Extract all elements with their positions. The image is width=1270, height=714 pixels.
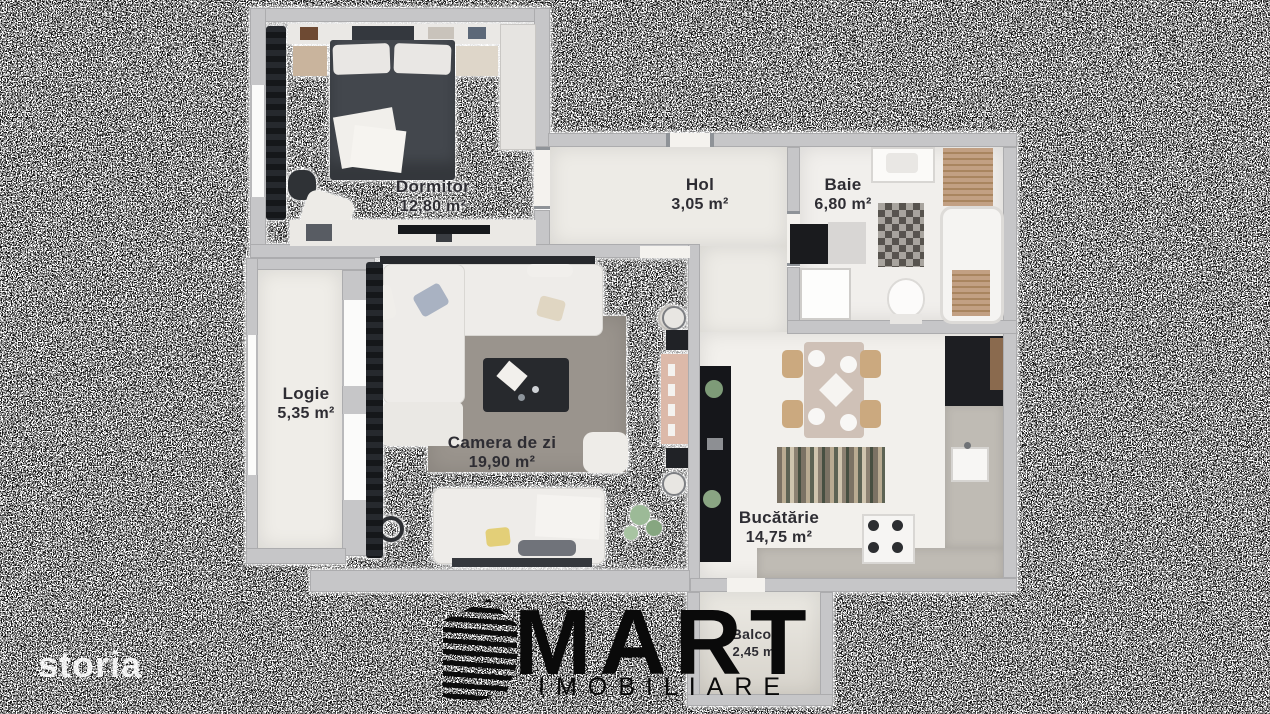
window <box>246 335 258 475</box>
wall-segment <box>250 8 550 22</box>
wood-panel <box>990 338 1003 390</box>
door-opening-entrance <box>666 133 714 147</box>
coffee-table <box>483 358 569 412</box>
dining-chair <box>860 350 881 378</box>
speaker <box>666 448 688 468</box>
door-opening-dormitor <box>534 150 550 208</box>
plate <box>808 350 825 367</box>
stove-burner <box>892 542 903 553</box>
wall-segment <box>246 548 346 564</box>
door-frame-tick <box>710 133 714 147</box>
shelf-box <box>428 27 454 39</box>
sink-basin <box>886 153 918 173</box>
bath-wood-shelf <box>943 148 993 206</box>
table-deco <box>532 386 539 393</box>
curtain <box>266 26 286 220</box>
room-area: 2,45 m² <box>732 644 780 660</box>
room-label-logie: Logie 5,35 m² <box>277 383 334 424</box>
stove-burner <box>868 520 879 531</box>
wall-dark-rail <box>380 256 595 264</box>
room-name: Logie <box>277 383 334 404</box>
wall-segment <box>687 694 833 706</box>
console-knob <box>668 424 675 436</box>
dining-chair <box>782 400 803 428</box>
room-label-hol: Hol 3,05 m² <box>671 174 728 215</box>
table-deco <box>518 394 525 401</box>
nightstand <box>293 46 327 76</box>
room-label-bucatarie: Bucătărie 14,75 m² <box>739 507 819 548</box>
floor-hol-corridor <box>700 246 787 336</box>
dining-chair <box>782 350 803 378</box>
room-label-baie: Baie 6,80 m² <box>814 174 871 215</box>
plate <box>840 414 857 431</box>
throw-blanket <box>535 494 601 539</box>
room-label-camera-de-zi: Camera de zi 19,90 m² <box>448 432 556 473</box>
wall-segment <box>687 592 700 706</box>
window <box>342 300 368 386</box>
floor-hol <box>550 147 787 246</box>
bath-rug <box>878 203 924 267</box>
shower-door <box>800 268 851 320</box>
tv-stand <box>436 234 452 242</box>
pillow <box>393 43 451 75</box>
console-knob <box>668 384 675 396</box>
pillow <box>332 43 390 75</box>
stove-burner <box>892 520 903 531</box>
wall-segment <box>787 147 800 212</box>
toilet-tank <box>890 314 922 324</box>
faucet <box>964 442 971 449</box>
wall-segment <box>534 8 550 147</box>
room-name: Baie <box>814 174 871 195</box>
wall-segment <box>246 258 375 270</box>
plate <box>808 408 825 425</box>
speaker <box>666 330 688 350</box>
wall-segment <box>688 244 700 592</box>
nightstand <box>456 46 498 76</box>
pillow <box>485 527 511 547</box>
door-opening-living <box>640 246 690 258</box>
bathroom-cabinet <box>828 222 866 264</box>
wall-segment <box>310 570 690 592</box>
floorplan: Dormitor 12,80 m² Hol 3,05 m² Baie 6,80 … <box>0 0 1270 714</box>
room-name: Balcon <box>732 626 780 644</box>
door-frame-tick <box>534 206 550 209</box>
curtain <box>366 262 383 558</box>
shelf-unit <box>352 26 414 40</box>
laptop <box>306 224 332 241</box>
door-frame-tick <box>666 133 670 147</box>
pouf <box>583 432 628 473</box>
tv <box>398 225 490 234</box>
shelf-books <box>468 27 486 39</box>
stove-burner <box>868 542 879 553</box>
room-name: Bucătărie <box>739 507 819 528</box>
console-knob <box>668 364 675 376</box>
vent <box>527 264 573 277</box>
room-name: Dormitor <box>396 176 470 197</box>
wall-segment <box>548 133 1017 147</box>
door-opening-balcon <box>727 578 765 592</box>
room-label-balcon: Balcon 2,45 m² <box>732 626 780 660</box>
wardrobe <box>500 24 536 150</box>
room-area: 14,75 m² <box>739 528 819 548</box>
room-name: Camera de zi <box>448 432 556 453</box>
lamp <box>662 306 686 330</box>
wall-segment <box>820 592 833 706</box>
floorplan-image: Dormitor 12,80 m² Hol 3,05 m² Baie 6,80 … <box>0 0 1270 714</box>
kitchen-pot <box>707 438 723 450</box>
room-area: 6,80 m² <box>814 195 871 215</box>
plate <box>840 356 857 373</box>
room-area: 12,80 m² <box>396 197 470 217</box>
lamp <box>662 472 686 496</box>
kitchen-sink <box>951 447 989 482</box>
window <box>250 85 266 197</box>
door-frame-tick <box>534 147 550 150</box>
blanket <box>350 125 407 173</box>
room-area: 5,35 m² <box>277 404 334 424</box>
seat-cushion <box>518 540 576 556</box>
shelf-books <box>300 27 318 40</box>
kitchen-rug <box>777 447 885 503</box>
sofa-base <box>452 558 592 567</box>
sofa-chaise <box>383 264 465 404</box>
wall-segment <box>1003 147 1017 578</box>
storia-watermark: storia <box>38 644 142 686</box>
window <box>342 414 368 500</box>
plant <box>646 520 662 536</box>
washing-machine <box>790 224 828 264</box>
bath-wood-mat <box>952 270 990 316</box>
door-frame-tick <box>787 211 800 214</box>
console-knob <box>668 404 675 416</box>
room-name: Hol <box>671 174 728 195</box>
room-area: 19,90 m² <box>448 453 556 473</box>
room-label-dormitor: Dormitor 12,80 m² <box>396 176 470 217</box>
plant <box>703 490 721 508</box>
toilet <box>887 278 925 318</box>
plant <box>624 526 638 540</box>
dining-chair <box>860 400 881 428</box>
plant <box>705 380 723 398</box>
room-area: 3,05 m² <box>671 195 728 215</box>
